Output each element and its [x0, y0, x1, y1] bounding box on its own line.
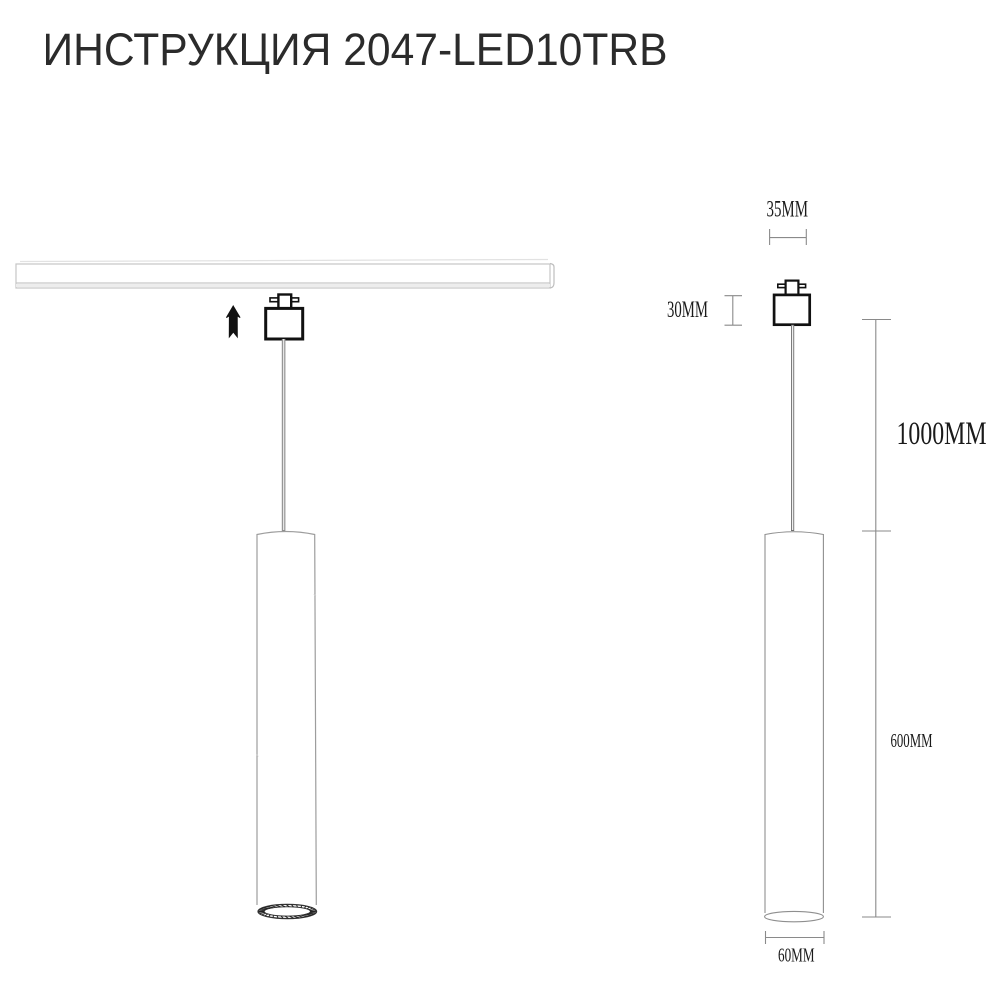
svg-text:35MM: 35MM: [767, 197, 809, 223]
svg-text:600MM: 600MM: [891, 730, 933, 752]
svg-text:1000MM: 1000MM: [897, 416, 987, 452]
svg-text:ИНСТРУКЦИЯ 2047-LED10TRB: ИНСТРУКЦИЯ 2047-LED10TRB: [43, 24, 668, 75]
svg-text:60MM: 60MM: [778, 946, 815, 967]
svg-text:30MM: 30MM: [667, 297, 708, 323]
